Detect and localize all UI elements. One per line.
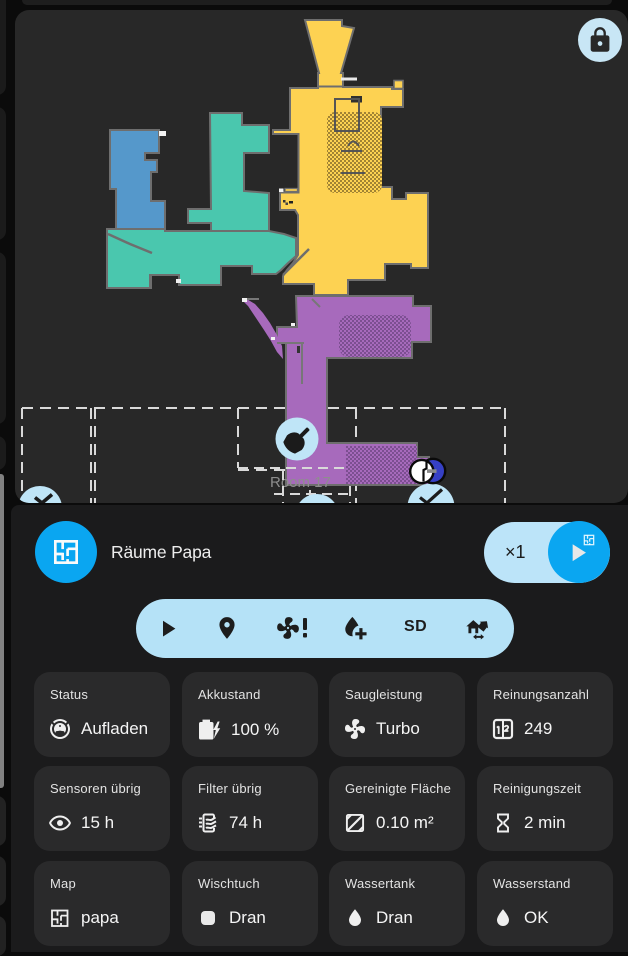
- svg-text:Room 17: Room 17: [270, 474, 331, 491]
